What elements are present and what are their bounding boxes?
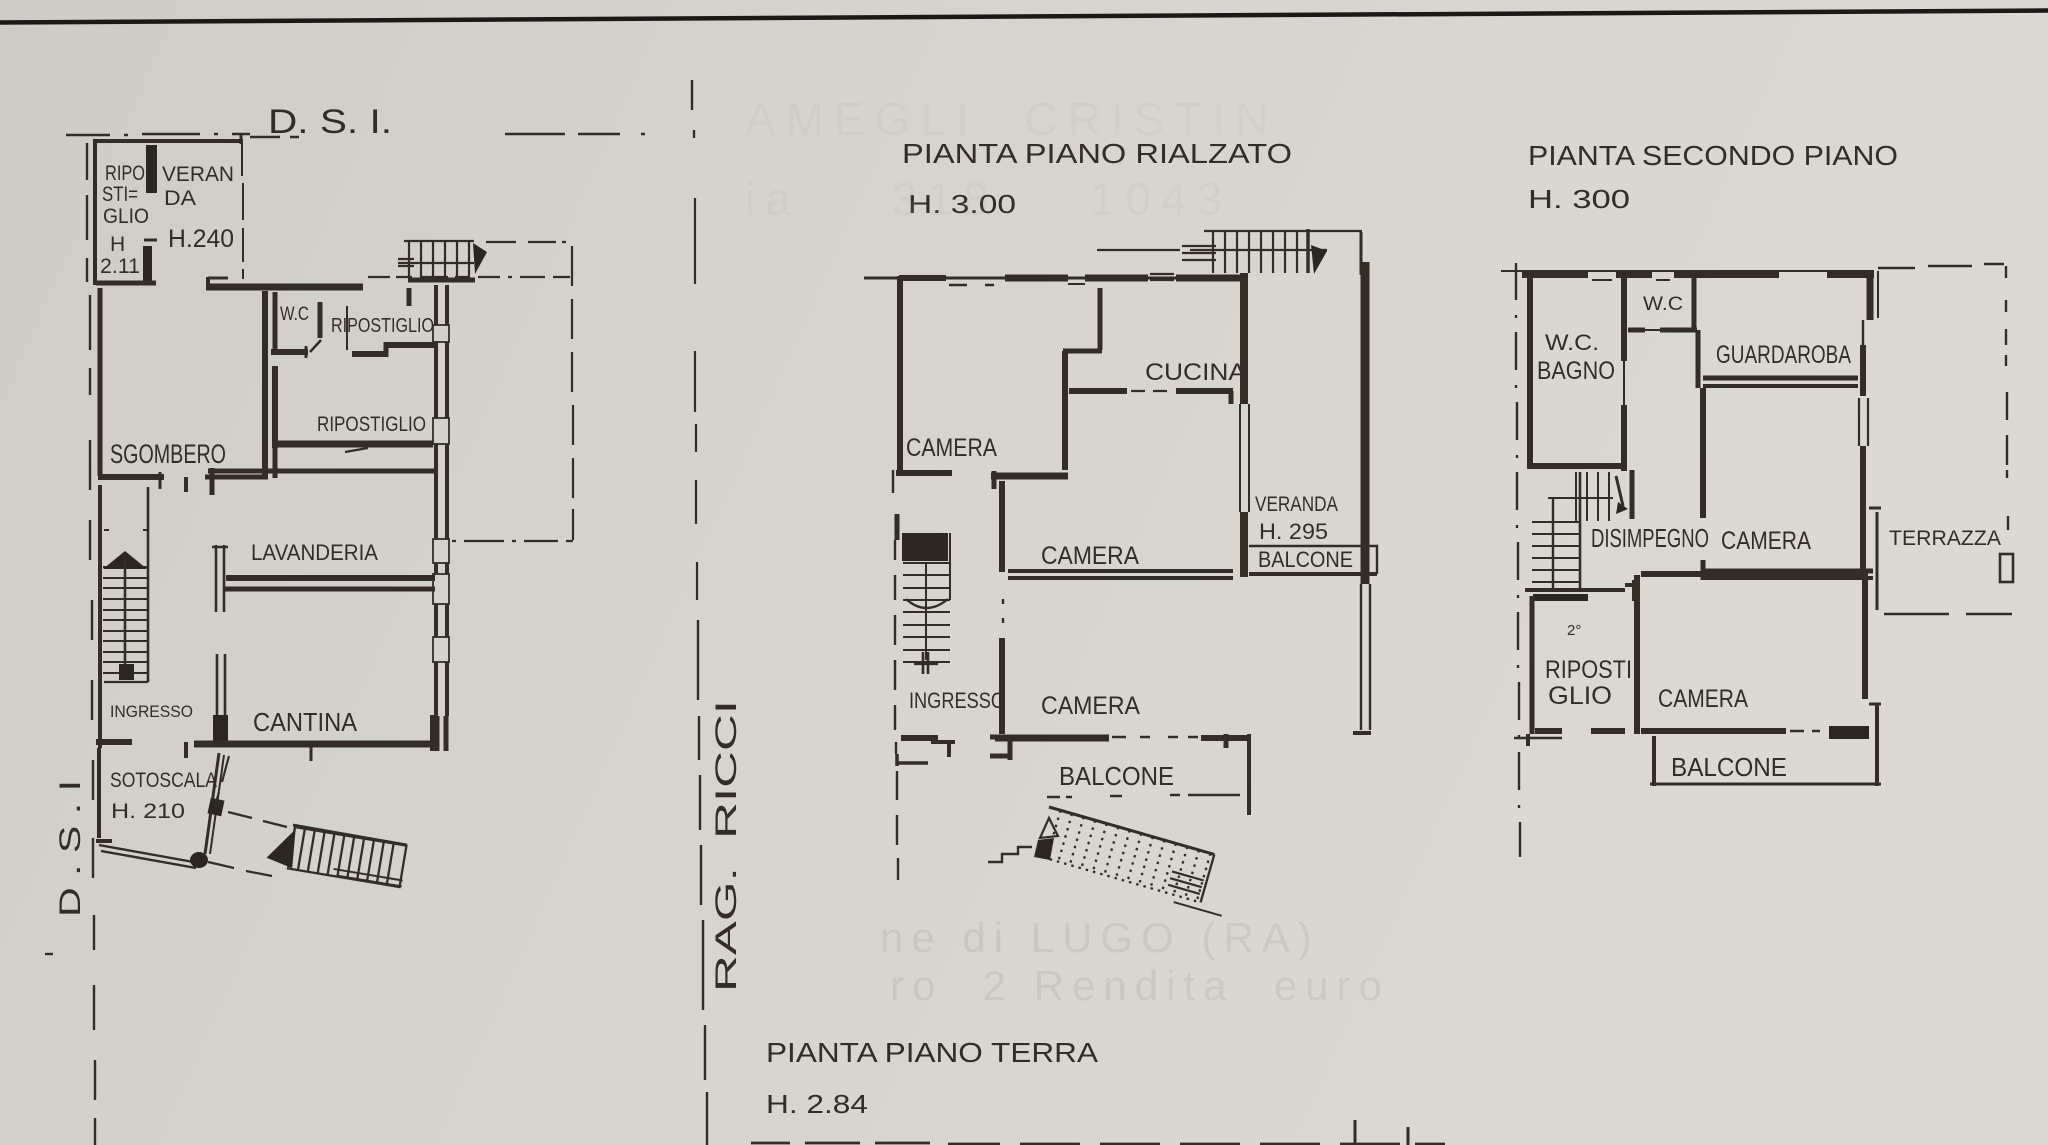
svg-text:2°: 2° <box>1567 622 1581 639</box>
svg-text:RIPOSTIGLIO: RIPOSTIGLIO <box>317 413 426 436</box>
svg-text:AMEGLI CRISTIN: AMEGLI CRISTIN <box>745 93 1278 145</box>
svg-text:GUARDAROBA: GUARDAROBA <box>1716 341 1851 369</box>
svg-text:D. S. I.: D. S. I. <box>268 103 392 141</box>
svg-text:TERRAZZA: TERRAZZA <box>1889 527 2001 550</box>
svg-text:BALCONE: BALCONE <box>1059 761 1174 791</box>
svg-text:LAVANDERIA: LAVANDERIA <box>251 540 378 565</box>
svg-text:CAMERA: CAMERA <box>1041 692 1140 720</box>
svg-text:CAMERA: CAMERA <box>1721 527 1811 555</box>
svg-text:W.C: W.C <box>280 304 309 325</box>
svg-text:RIPO: RIPO <box>105 162 145 185</box>
svg-text:CANTINA: CANTINA <box>253 707 358 737</box>
svg-text:SGOMBERO: SGOMBERO <box>110 439 226 469</box>
svg-text:SOTOSCALA: SOTOSCALA <box>110 769 217 792</box>
svg-text:CUCINA: CUCINA <box>1145 359 1246 386</box>
svg-text:BALCONE: BALCONE <box>1258 547 1353 572</box>
svg-text:W.C: W.C <box>1643 294 1683 315</box>
svg-text:RIPOSTIGLIO: RIPOSTIGLIO <box>331 315 434 337</box>
svg-text:VERANDA: VERANDA <box>1255 493 1338 516</box>
svg-text:BAGNO: BAGNO <box>1537 357 1615 385</box>
svg-text:STI=: STI= <box>102 183 138 206</box>
svg-text:H.240: H.240 <box>168 225 234 253</box>
svg-text:CAMERA: CAMERA <box>906 434 997 462</box>
svg-text:GLIO: GLIO <box>1548 682 1612 710</box>
svg-text:GLIO: GLIO <box>103 205 149 228</box>
svg-text:2.11: 2.11 <box>100 255 140 278</box>
svg-text:CAMERA: CAMERA <box>1658 685 1748 713</box>
svg-text:D . S . I: D . S . I <box>54 780 87 917</box>
svg-text:PIANTA PIANO TERRA: PIANTA PIANO TERRA <box>766 1037 1098 1068</box>
svg-text:VERAN: VERAN <box>162 163 234 186</box>
svg-text:H. 295: H. 295 <box>1259 519 1328 544</box>
svg-text:H. 210: H. 210 <box>111 800 185 823</box>
svg-text:CAMERA: CAMERA <box>1041 542 1139 570</box>
svg-text:ro 2 Rendita euro: ro 2 Rendita euro <box>890 962 1390 1009</box>
svg-text:H. 2.84: H. 2.84 <box>766 1089 868 1119</box>
svg-text:H: H <box>110 233 125 256</box>
svg-text:ia 318 1043: ia 318 1043 <box>745 173 1232 225</box>
svg-text:INGRESSO: INGRESSO <box>110 702 193 721</box>
svg-text:INGRESSO: INGRESSO <box>909 688 1005 713</box>
svg-text:DA: DA <box>164 187 196 210</box>
svg-text:W.C.: W.C. <box>1545 330 1599 355</box>
svg-text:PIANTA SECONDO PIANO: PIANTA SECONDO PIANO <box>1528 140 1898 171</box>
svg-text:BALCONE: BALCONE <box>1671 752 1787 782</box>
svg-text:DISIMPEGNO: DISIMPEGNO <box>1591 523 1709 553</box>
svg-text:RAG. RICCI: RAG. RICCI <box>710 700 743 992</box>
svg-text:H. 300: H. 300 <box>1528 184 1630 214</box>
svg-text:RIPOSTI: RIPOSTI <box>1545 656 1632 684</box>
svg-text:ne di LUGO (RA): ne di LUGO (RA) <box>880 914 1320 961</box>
